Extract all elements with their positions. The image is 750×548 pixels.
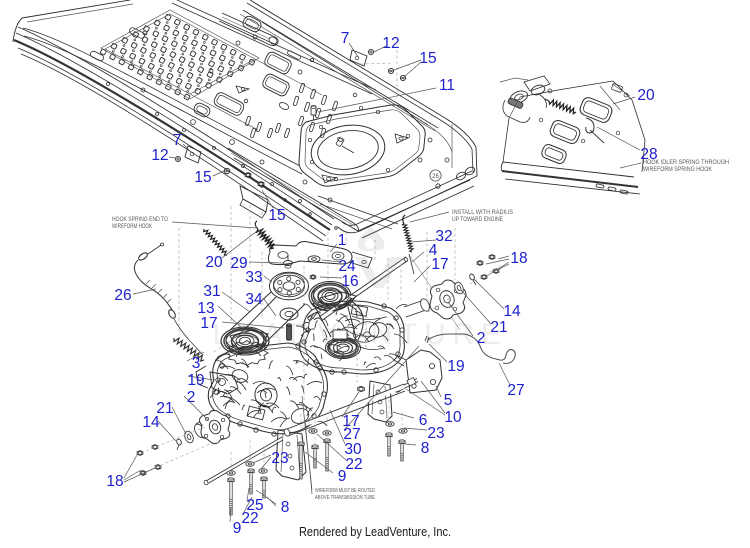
svg-text:8: 8	[281, 499, 290, 516]
svg-text:31: 31	[203, 283, 220, 300]
svg-text:16: 16	[341, 273, 358, 290]
svg-text:18: 18	[510, 250, 527, 267]
svg-text:26: 26	[432, 174, 439, 180]
svg-text:21: 21	[490, 319, 507, 336]
svg-text:14: 14	[142, 414, 160, 431]
svg-text:18: 18	[106, 473, 123, 490]
svg-text:2: 2	[477, 330, 486, 347]
svg-text:11: 11	[439, 77, 455, 94]
svg-text:22: 22	[241, 510, 258, 527]
svg-text:INSTALL WITH RADIUS: INSTALL WITH RADIUS	[452, 210, 513, 216]
svg-text:23: 23	[271, 450, 288, 467]
svg-text:19: 19	[187, 372, 204, 389]
svg-text:9: 9	[233, 520, 242, 537]
svg-text:28: 28	[640, 146, 657, 163]
svg-text:7: 7	[173, 132, 182, 149]
svg-text:26: 26	[114, 287, 131, 304]
svg-text:15: 15	[268, 207, 285, 224]
svg-text:Rendered by LeadVenture, Inc.: Rendered by LeadVenture, Inc.	[299, 524, 451, 539]
svg-text:14: 14	[503, 303, 521, 320]
svg-text:32: 32	[435, 228, 452, 245]
svg-text:15: 15	[194, 169, 211, 186]
svg-text:UP TOWARD ENGINE: UP TOWARD ENGINE	[452, 217, 503, 223]
svg-text:27: 27	[507, 382, 524, 399]
svg-text:17: 17	[431, 256, 448, 273]
svg-text:9: 9	[338, 468, 347, 485]
svg-text:20: 20	[637, 87, 655, 104]
svg-text:34: 34	[245, 291, 263, 308]
svg-text:5: 5	[444, 392, 453, 409]
svg-text:17: 17	[200, 315, 217, 332]
svg-text:22: 22	[345, 456, 362, 473]
svg-text:7: 7	[341, 30, 350, 47]
svg-text:WIREFORM SPRING HOOK: WIREFORM SPRING HOOK	[643, 167, 712, 173]
svg-text:HOOK SPRING END TO: HOOK SPRING END TO	[112, 217, 168, 223]
svg-text:WIREFORM HOOK: WIREFORM HOOK	[112, 224, 152, 230]
svg-text:1: 1	[338, 232, 347, 249]
svg-text:8: 8	[421, 440, 430, 457]
svg-text:19: 19	[447, 358, 464, 375]
svg-text:23: 23	[427, 425, 444, 442]
svg-text:2: 2	[187, 389, 196, 406]
svg-text:3: 3	[192, 355, 201, 372]
svg-text:12: 12	[382, 35, 399, 52]
svg-text:20: 20	[205, 254, 223, 271]
svg-text:33: 33	[245, 269, 262, 286]
svg-text:15: 15	[419, 50, 436, 67]
svg-text:ABOVE TRANSMISSION TUBE: ABOVE TRANSMISSION TUBE	[315, 495, 375, 501]
svg-text:6: 6	[419, 412, 428, 429]
svg-text:12: 12	[151, 147, 168, 164]
svg-text:10: 10	[444, 409, 462, 426]
svg-text:WIREFORM MUST BE ROUTED: WIREFORM MUST BE ROUTED	[315, 488, 375, 494]
